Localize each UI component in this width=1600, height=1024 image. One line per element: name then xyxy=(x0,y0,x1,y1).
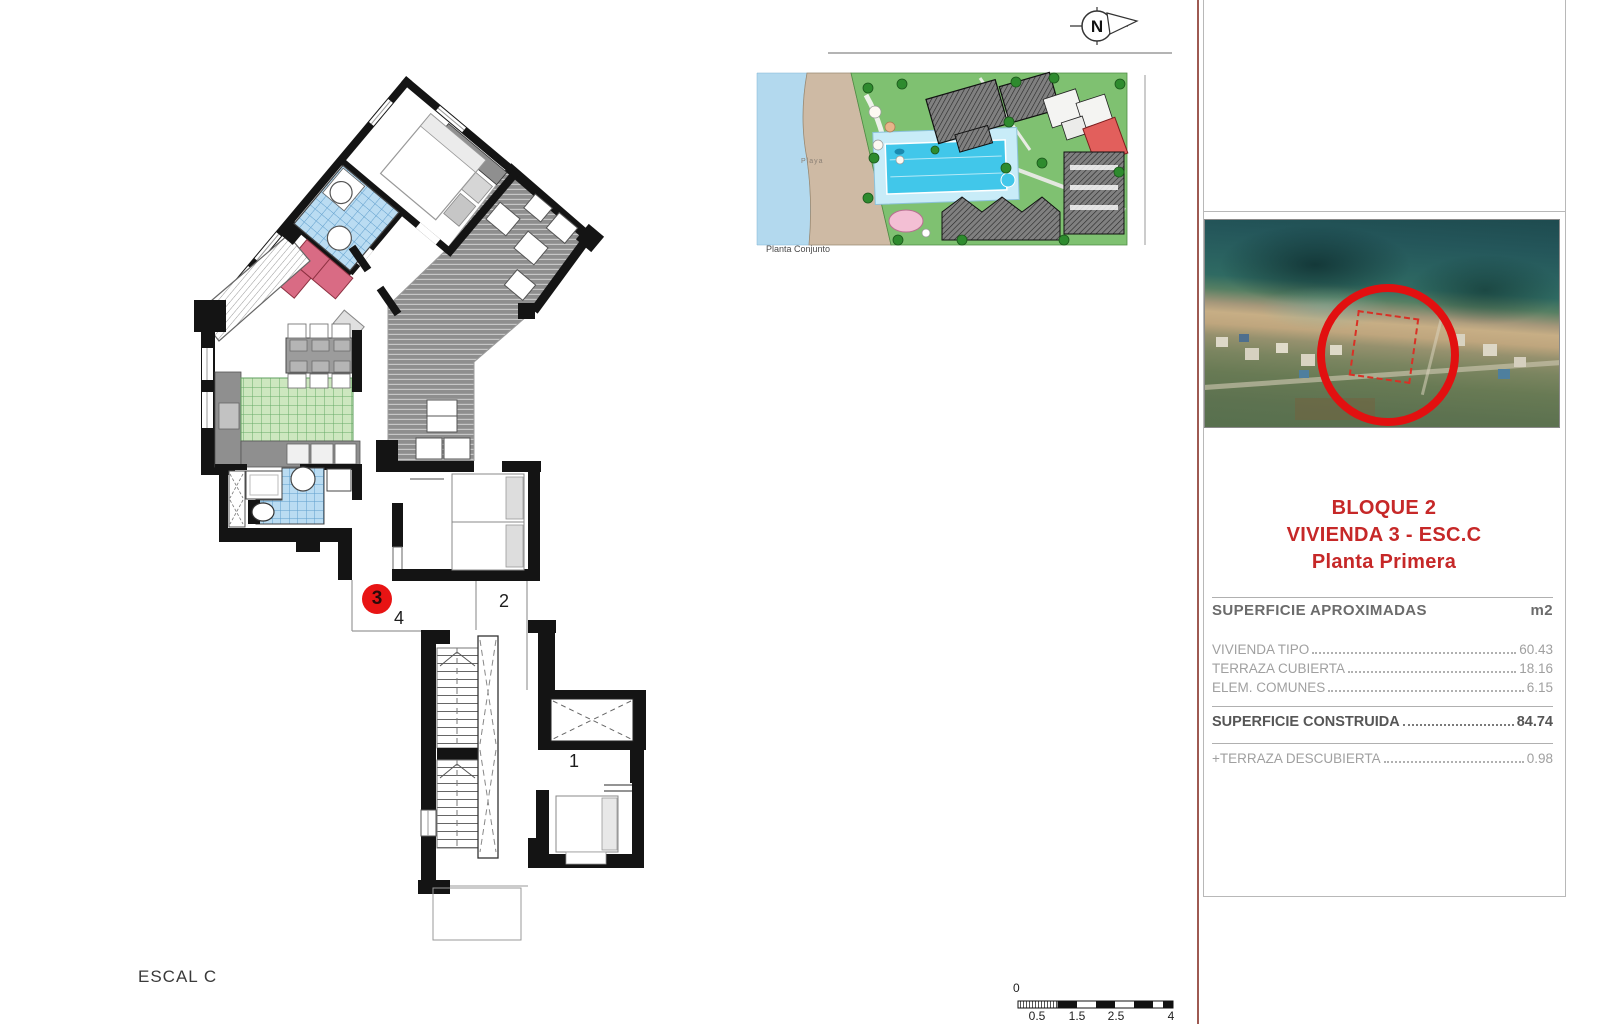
scale-tick-label: 2.5 xyxy=(1103,1009,1129,1023)
bathroom-2 xyxy=(215,464,362,580)
beach-label: Playa xyxy=(801,158,824,165)
dotted-leader xyxy=(1384,761,1524,763)
table-rule-top xyxy=(1212,597,1553,598)
table-total-row: SUPERFICIE CONSTRUIDA 84.74 xyxy=(1212,714,1553,730)
unit-title: BLOQUE 2 VIVIENDA 3 - ESC.C Planta Prime… xyxy=(1208,495,1560,576)
title-unit: VIVIENDA 3 - ESC.C xyxy=(1208,522,1560,549)
dotted-leader xyxy=(1328,690,1523,692)
total-label: SUPERFICIE CONSTRUIDA xyxy=(1212,714,1400,730)
table-row: TERRAZA CUBIERTA 18.16 xyxy=(1212,661,1553,680)
room-number-1: 1 xyxy=(569,751,579,772)
table-row: ELEM. COMUNES 6.15 xyxy=(1212,680,1553,699)
title-block: BLOQUE 2 xyxy=(1208,495,1560,522)
plan-name-label: ESCAL C xyxy=(138,967,217,987)
twin-beds xyxy=(452,474,524,570)
page-red-rule xyxy=(1197,0,1199,1024)
floor-plan xyxy=(194,76,646,940)
row-value: 6.15 xyxy=(1527,680,1553,695)
patio-outline xyxy=(433,888,521,940)
buildings-east xyxy=(1064,152,1124,234)
scale-tick-label: 4 xyxy=(1158,1009,1184,1023)
info-panel-divider xyxy=(1203,211,1566,212)
dotted-leader xyxy=(1403,724,1514,726)
rooftop-specks xyxy=(1205,220,1211,224)
pond xyxy=(889,210,923,232)
location-circle-marker xyxy=(1317,284,1459,426)
scale-zero-label: 0 xyxy=(1013,981,1020,995)
site-plan-caption: Planta Conjunto xyxy=(766,244,830,254)
table-rule-bottom xyxy=(1212,743,1553,744)
dotted-leader xyxy=(1348,671,1516,673)
stair-stringer xyxy=(478,636,498,858)
scale-tick-label: 0.5 xyxy=(1024,1009,1050,1023)
extra-value: 0.98 xyxy=(1527,751,1553,766)
buildings-south xyxy=(942,197,1060,240)
row-label: TERRAZA CUBIERTA xyxy=(1212,661,1345,676)
terrace-covered xyxy=(376,166,604,472)
scale-bar xyxy=(1018,1001,1173,1008)
table-extra-row: +TERRAZA DESCUBIERTA 0.98 xyxy=(1212,751,1553,766)
aerial-photo xyxy=(1204,219,1560,428)
kitchen xyxy=(201,324,362,475)
row-value: 18.16 xyxy=(1519,661,1553,676)
extra-label: +TERRAZA DESCUBIERTA xyxy=(1212,751,1381,766)
surface-table-rows: VIVIENDA TIPO 60.43 TERRAZA CUBIERTA 18.… xyxy=(1212,642,1553,699)
room-1 xyxy=(528,780,644,868)
bedroom-2 xyxy=(388,461,541,581)
scale-tick-label: 1.5 xyxy=(1064,1009,1090,1023)
table-rule-mid xyxy=(1212,706,1553,707)
north-arrow-icon: N xyxy=(1070,7,1137,45)
row-label: VIVIENDA TIPO xyxy=(1212,642,1309,657)
dotted-leader xyxy=(1312,652,1516,654)
table-unit-label: m2 xyxy=(1531,602,1553,619)
total-value: 84.74 xyxy=(1517,714,1553,730)
room-number-4: 4 xyxy=(394,608,404,629)
stairwell xyxy=(418,630,528,940)
title-floor: Planta Primera xyxy=(1208,549,1560,576)
surface-table-header: SUPERFICIE APROXIMADAS m2 xyxy=(1212,602,1553,619)
table-header-label: SUPERFICIE APROXIMADAS xyxy=(1212,602,1427,619)
site-plan xyxy=(757,53,1172,245)
louver-door xyxy=(229,471,245,527)
unit-number-badge: 3 xyxy=(362,584,392,614)
dining-table xyxy=(286,324,352,388)
room-number-2: 2 xyxy=(499,591,509,612)
compass-label: N xyxy=(1091,17,1103,36)
row-value: 60.43 xyxy=(1519,642,1553,657)
row-label: ELEM. COMUNES xyxy=(1212,680,1325,695)
elevator-core xyxy=(528,620,646,783)
table-row: VIVIENDA TIPO 60.43 xyxy=(1212,642,1553,661)
